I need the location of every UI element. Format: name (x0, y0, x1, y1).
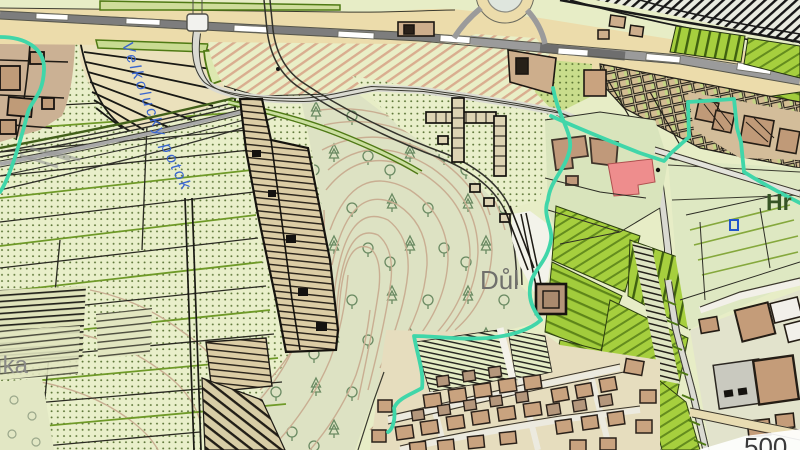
svg-text:500: 500 (744, 432, 787, 450)
svg-text:Hr: Hr (766, 189, 792, 215)
svg-text:ıka: ıka (0, 352, 29, 379)
svg-text:Důl: Důl (480, 265, 519, 295)
